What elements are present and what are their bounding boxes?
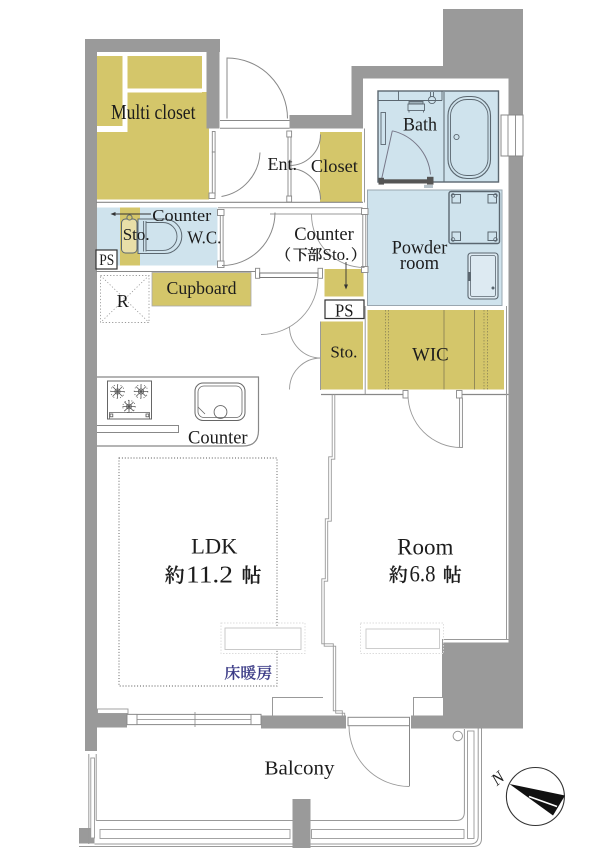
svg-text:R: R bbox=[117, 291, 129, 311]
svg-text:Closet: Closet bbox=[311, 156, 358, 176]
svg-text:PS: PS bbox=[99, 252, 114, 269]
svg-text:room: room bbox=[400, 254, 440, 274]
svg-text:Balcony: Balcony bbox=[265, 758, 335, 780]
svg-text:Ent.: Ent. bbox=[268, 154, 298, 174]
svg-text:6.8: 6.8 bbox=[410, 562, 436, 587]
svg-text:Bath: Bath bbox=[403, 115, 437, 136]
svg-text:Counter: Counter bbox=[294, 225, 354, 245]
svg-text:W.C.: W.C. bbox=[187, 228, 221, 248]
svg-text:Room: Room bbox=[397, 535, 453, 560]
svg-text:Sto.: Sto. bbox=[323, 245, 350, 264]
svg-text:11.2: 11.2 bbox=[186, 562, 233, 588]
svg-text:Sto.: Sto. bbox=[330, 343, 357, 362]
svg-text:Counter: Counter bbox=[152, 206, 211, 225]
svg-text:Counter: Counter bbox=[188, 429, 248, 449]
svg-text:Cupboard: Cupboard bbox=[167, 278, 237, 298]
svg-text:PS: PS bbox=[335, 301, 354, 321]
svg-text:Sto.: Sto. bbox=[123, 225, 150, 244]
svg-text:Multi closet: Multi closet bbox=[111, 100, 196, 124]
svg-text:WIC: WIC bbox=[412, 345, 449, 366]
svg-text:LDK: LDK bbox=[191, 534, 238, 559]
